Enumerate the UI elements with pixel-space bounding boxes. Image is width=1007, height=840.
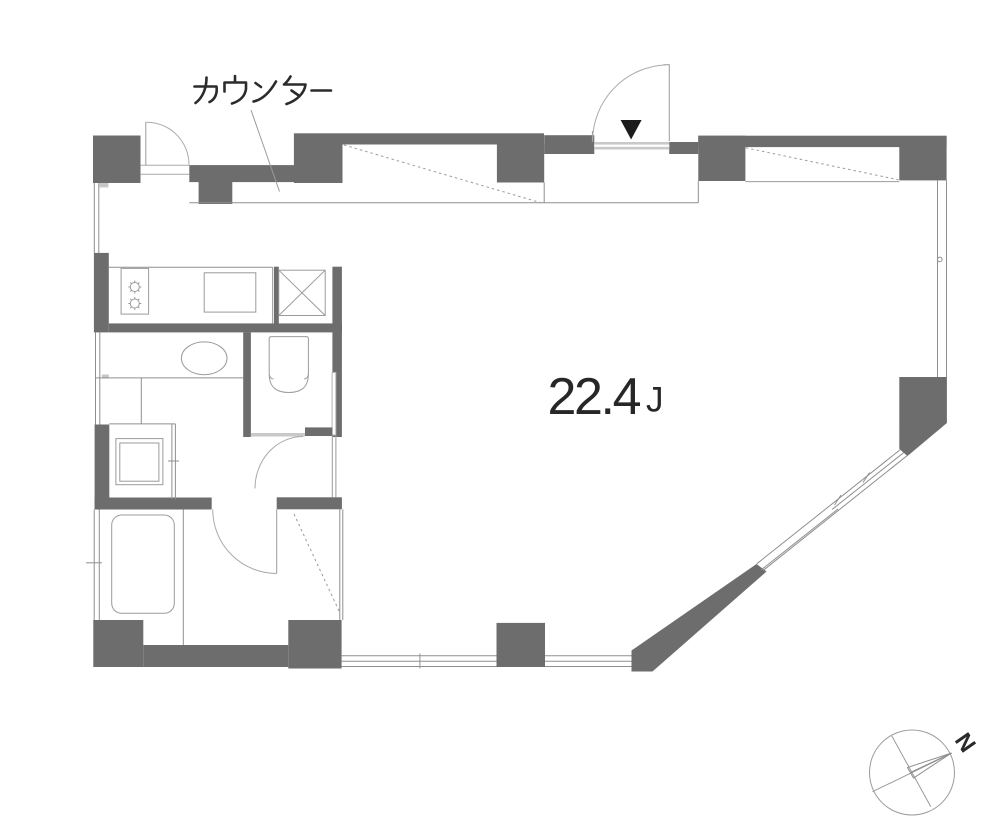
svg-text:J: J — [646, 381, 664, 420]
svg-text:22.4: 22.4 — [548, 368, 641, 426]
